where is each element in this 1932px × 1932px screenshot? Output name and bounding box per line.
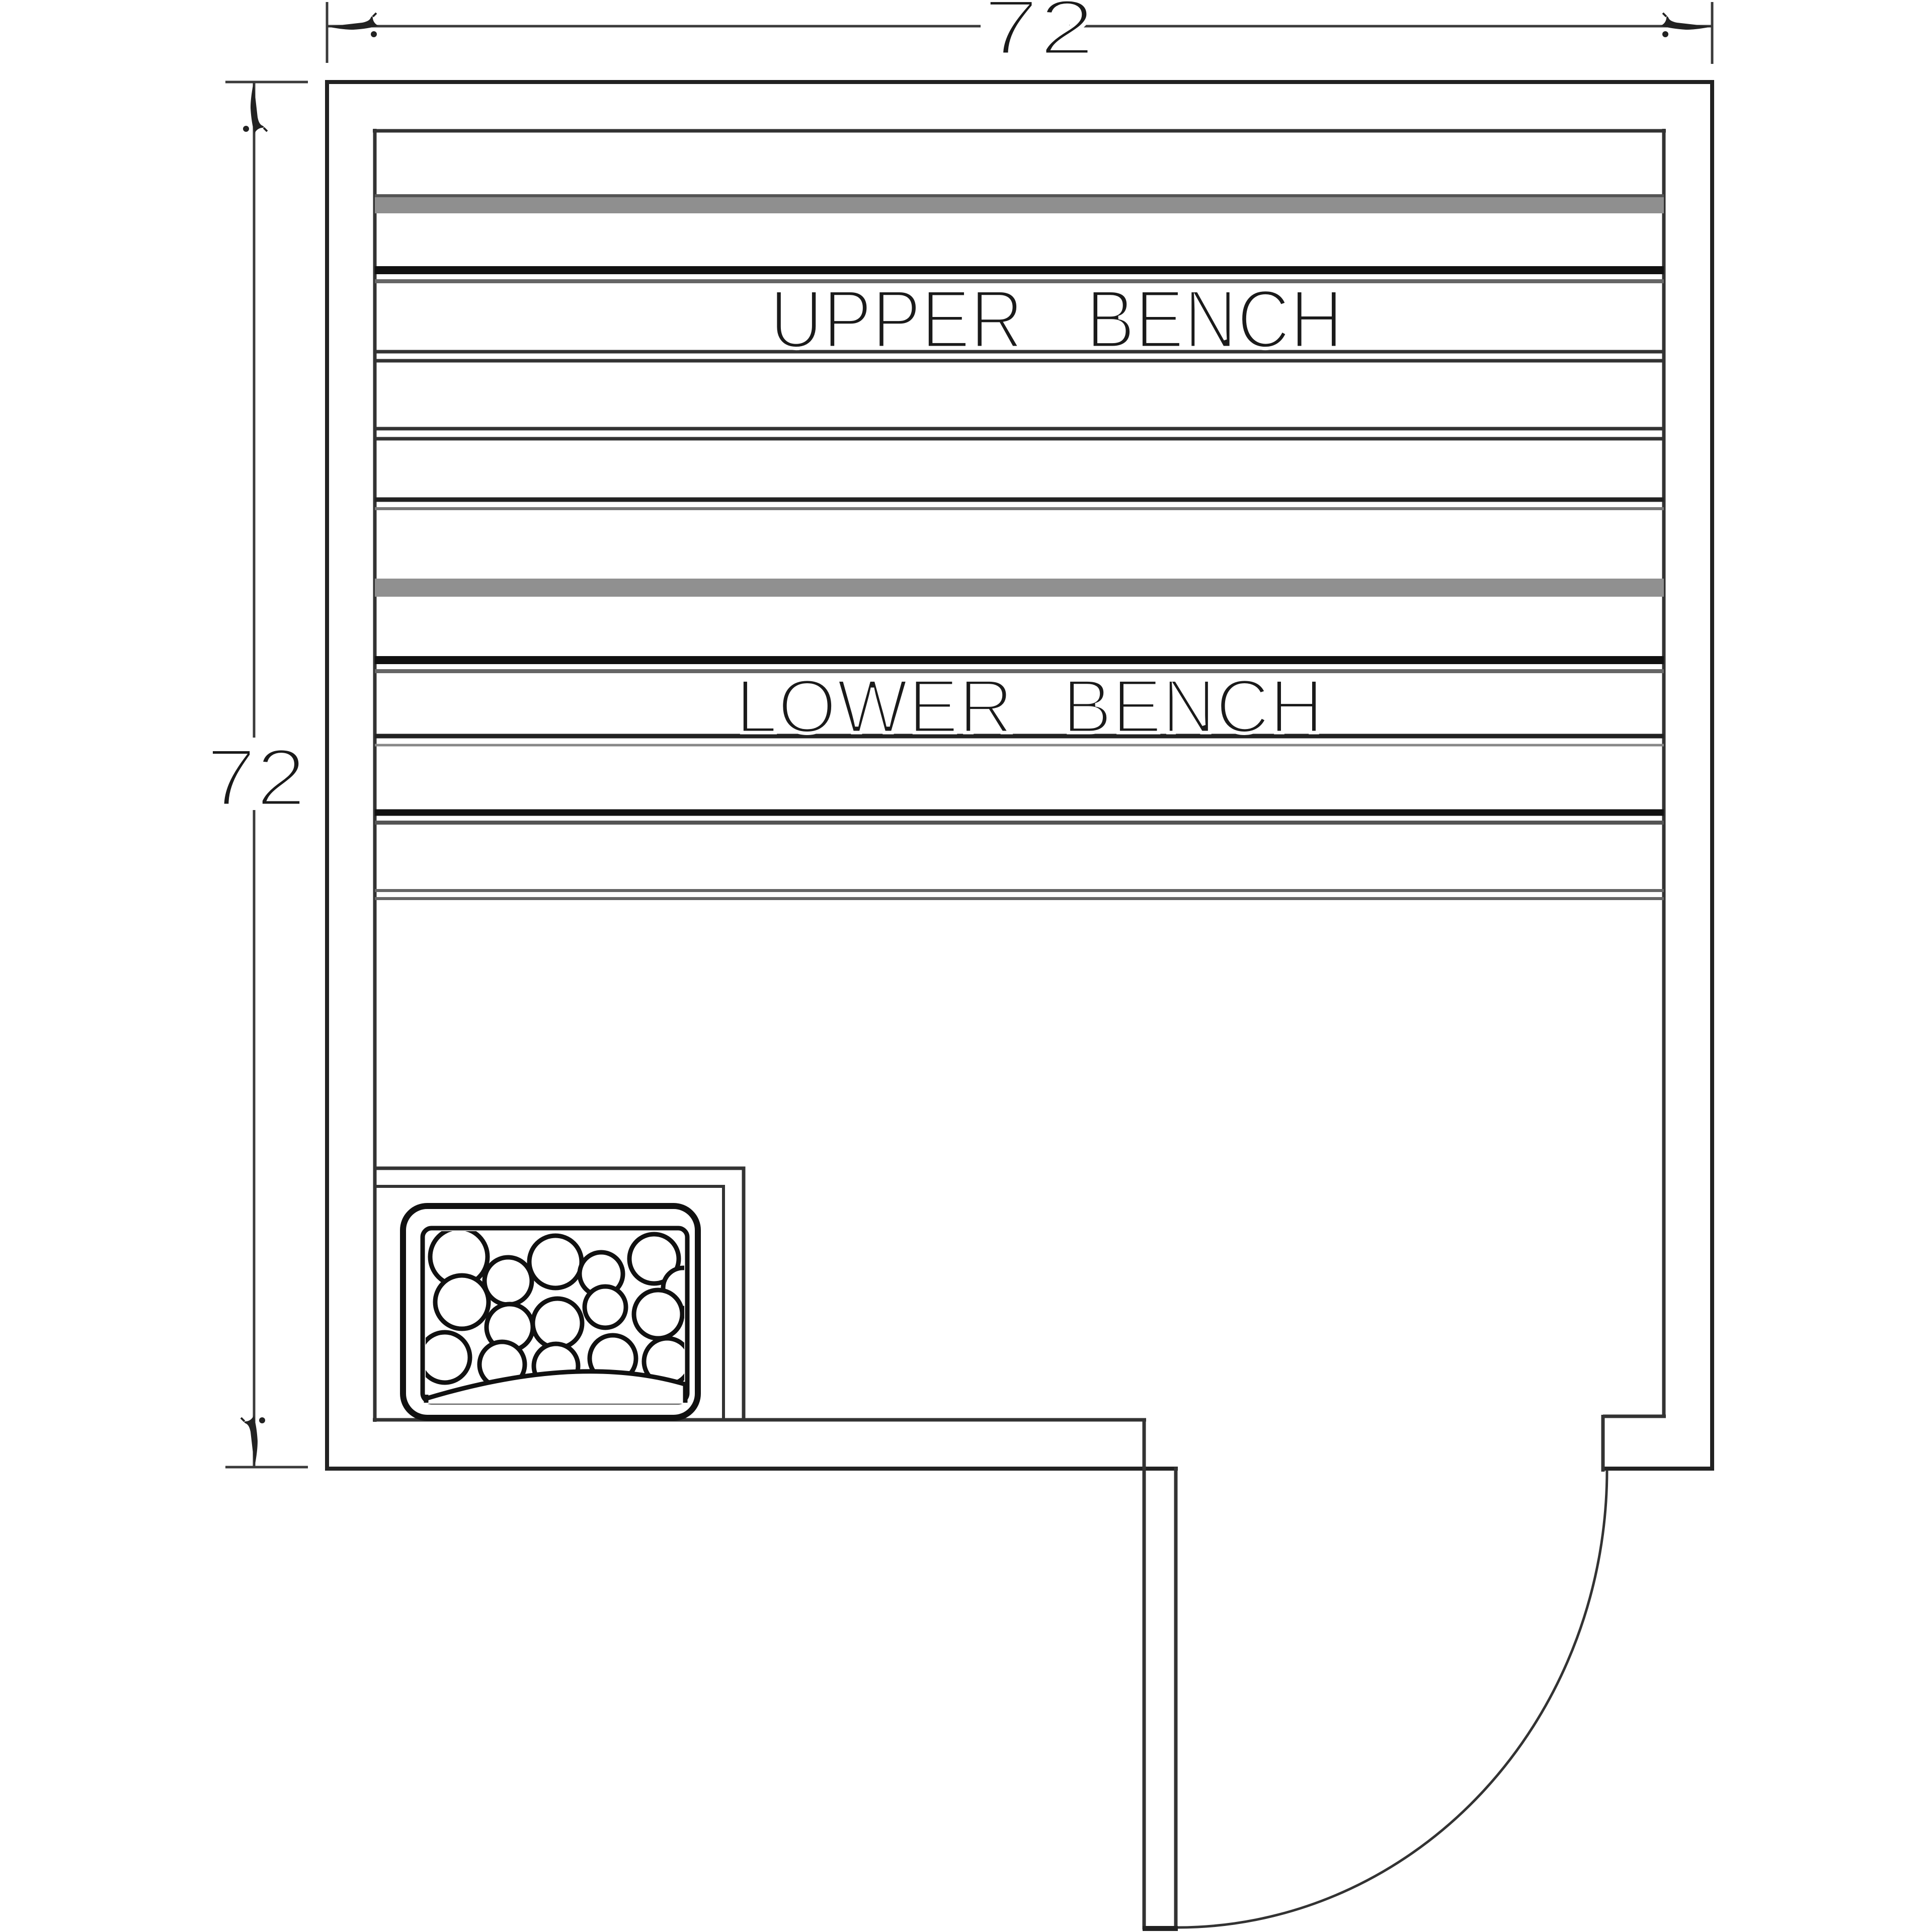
svg-text:72: 72 [983, 0, 1095, 71]
svg-text:UPPER: UPPER [770, 273, 1023, 365]
svg-text:BENCH: BENCH [1063, 664, 1324, 749]
svg-text:LOWER: LOWER [736, 664, 1013, 749]
svg-text:72: 72 [206, 732, 306, 823]
svg-text:BENCH: BENCH [1086, 273, 1343, 365]
